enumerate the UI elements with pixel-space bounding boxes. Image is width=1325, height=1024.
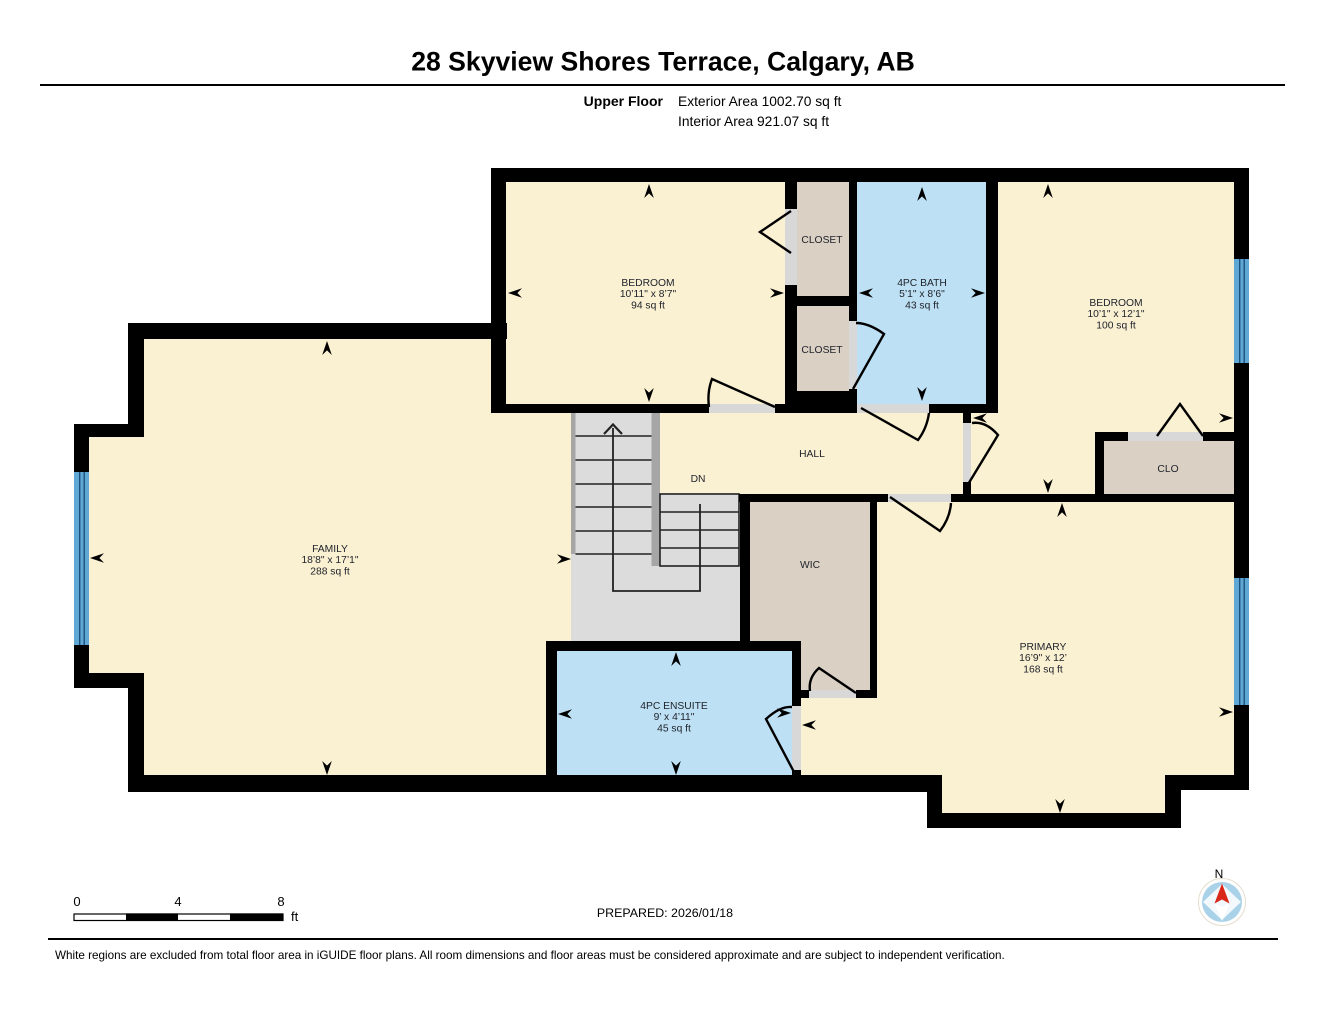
svg-text:168 sq ft: 168 sq ft: [1023, 664, 1063, 675]
svg-text:100 sq ft: 100 sq ft: [1096, 320, 1136, 331]
svg-text:4: 4: [174, 894, 181, 909]
svg-text:288 sq ft: 288 sq ft: [310, 566, 350, 577]
svg-text:18’8" x 17’1": 18’8" x 17’1": [301, 555, 358, 566]
svg-text:BEDROOM: BEDROOM: [621, 278, 674, 289]
svg-text:PREPARED: 2026/01/18: PREPARED: 2026/01/18: [597, 906, 733, 920]
svg-text:4PC ENSUITE: 4PC ENSUITE: [640, 701, 708, 712]
svg-text:9’ x 4’11": 9’ x 4’11": [654, 712, 695, 723]
svg-text:HALL: HALL: [799, 449, 825, 460]
svg-text:PRIMARY: PRIMARY: [1020, 642, 1067, 653]
svg-text:BEDROOM: BEDROOM: [1089, 298, 1142, 309]
svg-text:White regions are excluded fro: White regions are excluded from total fl…: [55, 949, 1005, 962]
svg-text:WIC: WIC: [800, 560, 821, 571]
svg-text:4PC BATH: 4PC BATH: [897, 278, 947, 289]
svg-text:5’1" x 8’6": 5’1" x 8’6": [899, 289, 945, 300]
svg-text:28 Skyview Shores Terrace, Cal: 28 Skyview Shores Terrace, Calgary, AB: [411, 47, 915, 77]
svg-text:DN: DN: [691, 474, 706, 485]
svg-text:43 sq ft: 43 sq ft: [905, 300, 939, 311]
svg-text:45 sq ft: 45 sq ft: [657, 723, 691, 734]
svg-text:Exterior Area 1002.70 sq ft: Exterior Area 1002.70 sq ft: [678, 94, 842, 109]
svg-text:CLOSET: CLOSET: [801, 235, 843, 246]
svg-text:ft: ft: [291, 909, 299, 924]
svg-text:CLO: CLO: [1157, 464, 1178, 475]
svg-text:CLOSET: CLOSET: [801, 345, 843, 356]
svg-text:10’11" x 8’7": 10’11" x 8’7": [620, 289, 677, 300]
svg-text:Upper Floor: Upper Floor: [584, 93, 664, 109]
svg-text:8: 8: [277, 894, 284, 909]
svg-text:16’9" x 12’: 16’9" x 12’: [1019, 653, 1067, 664]
svg-text:10’1" x 12’1": 10’1" x 12’1": [1087, 309, 1144, 320]
svg-text:Interior Area 921.07 sq ft: Interior Area 921.07 sq ft: [678, 114, 829, 129]
svg-text:0: 0: [73, 894, 80, 909]
svg-text:FAMILY: FAMILY: [312, 544, 348, 555]
svg-text:94 sq ft: 94 sq ft: [631, 300, 665, 311]
